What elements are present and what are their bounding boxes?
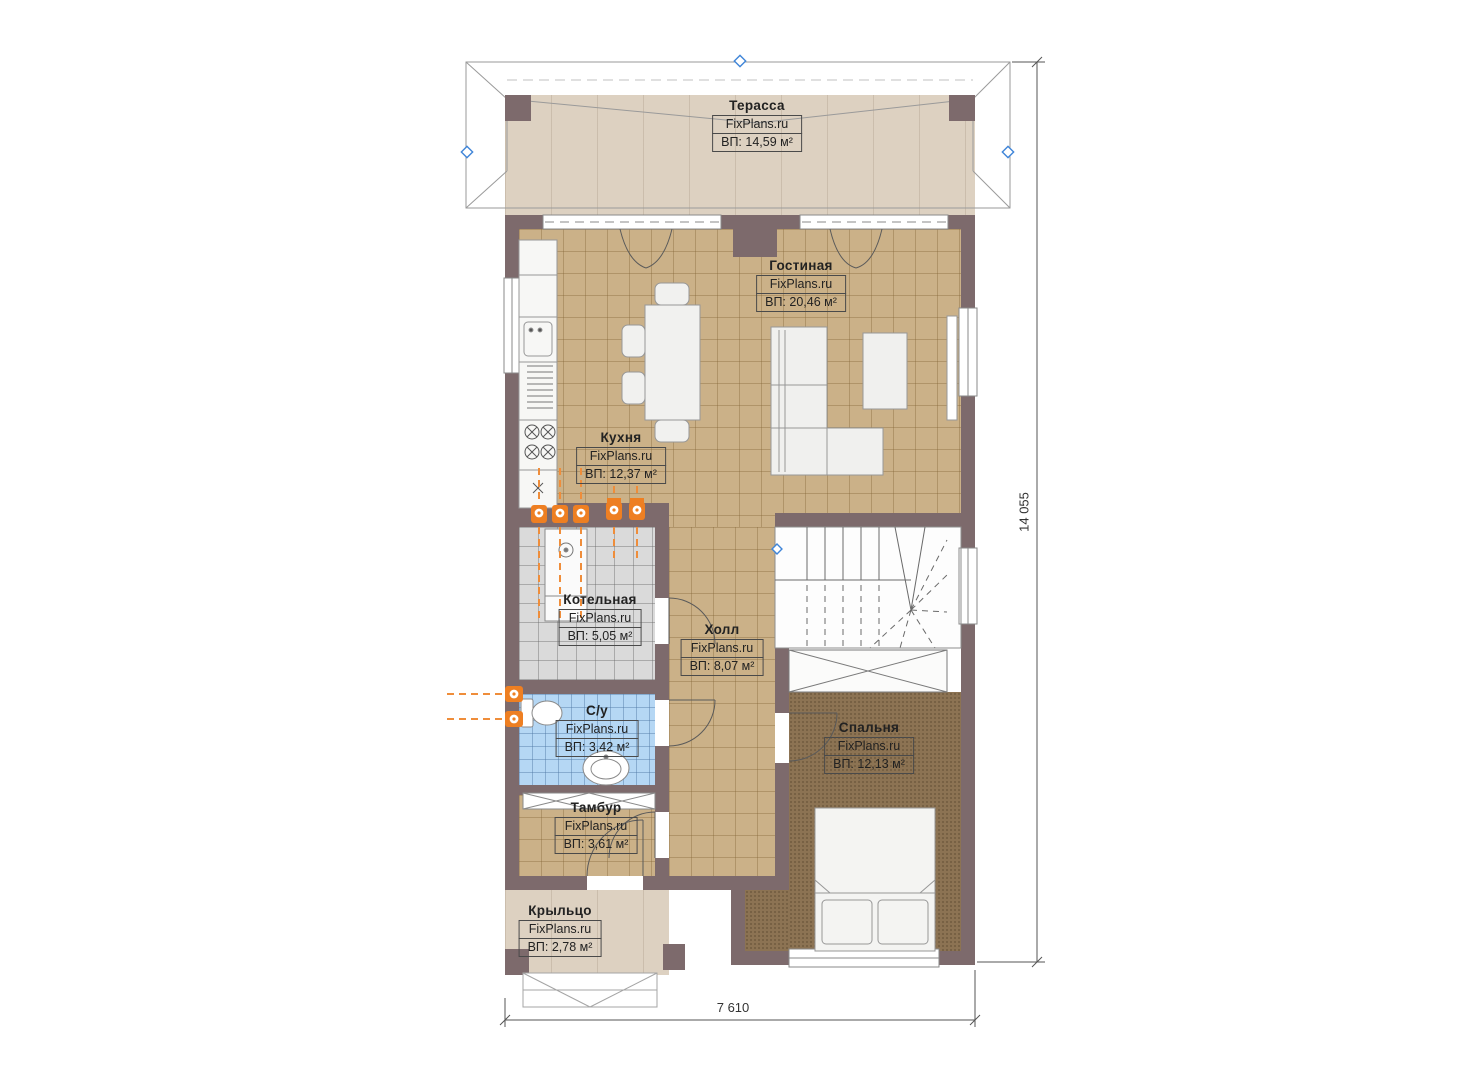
dimension-height: 14 055: [1017, 492, 1032, 532]
room-label-kitchen: Кухня FixPlans.ru ВП: 12,37 м²: [576, 430, 666, 484]
room-label-terrace: Терасса FixPlans.ru ВП: 14,59 м²: [712, 98, 802, 152]
room-label-bathroom: С/у FixPlans.ru ВП: 3,42 м²: [556, 703, 639, 757]
room-area: ВП: 3,61 м²: [555, 835, 638, 854]
room-label-hall: Холл FixPlans.ru ВП: 8,07 м²: [681, 622, 764, 676]
room-label-boiler: Котельная FixPlans.ru ВП: 5,05 м²: [559, 592, 642, 646]
room-name: Тамбур: [555, 800, 638, 815]
watermark: FixPlans.ru: [559, 609, 642, 628]
room-name: Котельная: [559, 592, 642, 607]
coffee-table: [863, 333, 907, 409]
radiator-icon: [947, 316, 957, 420]
watermark: FixPlans.ru: [555, 817, 638, 836]
watermark: FixPlans.ru: [519, 920, 602, 939]
watermark: FixPlans.ru: [556, 720, 639, 739]
bathroom-door-swing: [669, 700, 715, 746]
room-area: ВП: 8,07 м²: [681, 657, 764, 676]
staircase: [775, 527, 961, 648]
room-label-bedroom: Спальня FixPlans.ru ВП: 12,13 м²: [824, 720, 914, 774]
room-name: Гостиная: [756, 258, 846, 273]
dining-table: [622, 283, 700, 442]
room-name: Кухня: [576, 430, 666, 445]
pillow: [822, 900, 872, 944]
room-area: ВП: 5,05 м²: [559, 627, 642, 646]
pillow: [878, 900, 928, 944]
floor-plan: 14 055 7 610 Терасса FixPlans.ru ВП: 14,…: [0, 0, 1474, 1080]
room-area: ВП: 20,46 м²: [756, 293, 846, 312]
watermark: FixPlans.ru: [824, 737, 914, 756]
room-area: ВП: 3,42 м²: [556, 738, 639, 757]
chair: [622, 372, 645, 404]
room-name: Спальня: [824, 720, 914, 735]
chair: [655, 283, 689, 305]
room-label-living: Гостиная FixPlans.ru ВП: 20,46 м²: [756, 258, 846, 312]
sink-icon: [524, 322, 552, 356]
watermark: FixPlans.ru: [756, 275, 846, 294]
room-name: Терасса: [712, 98, 802, 113]
watermark: FixPlans.ru: [681, 639, 764, 658]
plan-drawing: [0, 0, 1474, 1080]
room-area: ВП: 12,13 м²: [824, 755, 914, 774]
bed: [815, 808, 935, 951]
kitchen-counter: [519, 240, 557, 508]
room-name: Холл: [681, 622, 764, 637]
porch-steps: [523, 973, 657, 1007]
chair: [622, 325, 645, 357]
wardrobe: [789, 650, 947, 692]
dimension-width: 7 610: [717, 1000, 750, 1015]
room-area: ВП: 2,78 м²: [519, 938, 602, 957]
watermark: FixPlans.ru: [712, 115, 802, 134]
room-area: ВП: 14,59 м²: [712, 133, 802, 152]
room-label-porch: Крыльцо FixPlans.ru ВП: 2,78 м²: [519, 903, 602, 957]
room-name: С/у: [556, 703, 639, 718]
room-area: ВП: 12,37 м²: [576, 465, 666, 484]
room-label-tambour: Тамбур FixPlans.ru ВП: 3,61 м²: [555, 800, 638, 854]
watermark: FixPlans.ru: [576, 447, 666, 466]
room-name: Крыльцо: [519, 903, 602, 918]
